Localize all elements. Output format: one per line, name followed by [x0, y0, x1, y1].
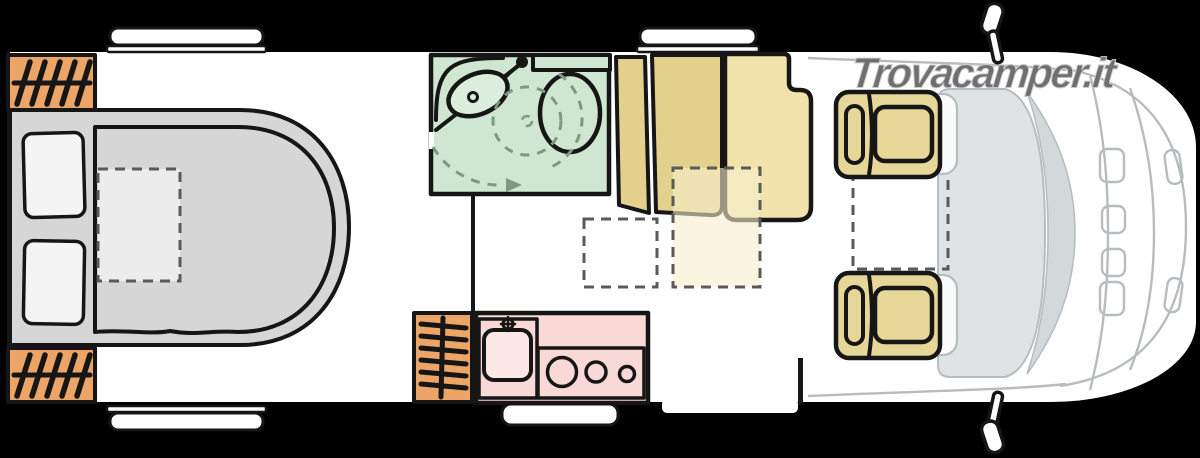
roof-vent-icon: [110, 413, 263, 430]
wall-bathroom-kitchen: [471, 196, 475, 313]
roof-vent-flange: [107, 46, 266, 52]
toilet-tank: [533, 55, 610, 70]
roof-vent-icon: [502, 404, 618, 425]
armrest: [846, 287, 863, 344]
wardrobe-door: [616, 57, 649, 213]
rear-heater-vent-bottom: [8, 348, 95, 402]
headlight-icon: [1164, 149, 1184, 185]
bathroom-door-gap: [429, 132, 434, 149]
swivel-area-dashed: [853, 173, 948, 269]
roof-vent-icon: [640, 28, 756, 45]
bed-pad-dashed: [98, 169, 180, 281]
camper-floorplan-image: Trovacamper.it: [0, 0, 1200, 458]
rear-heater-vent-top: [8, 55, 95, 110]
nose-outline: [1060, 68, 1186, 386]
cab-passenger-seat: [836, 92, 957, 177]
island-bed: [10, 110, 349, 345]
seat-cushion: [875, 107, 932, 161]
cab-floor-line: [808, 384, 1066, 396]
wing-mirror-icon: [979, 419, 1005, 455]
armrest: [846, 106, 863, 163]
floor-marker-dashed: [584, 219, 657, 287]
hood-line-2: [1130, 88, 1154, 370]
cab-driver-seat: [836, 273, 957, 358]
grille-slot-icon: [1102, 249, 1125, 276]
dinette-table-dashed: [673, 168, 760, 287]
faucet-icon: [516, 56, 528, 68]
kitchen: [476, 313, 648, 403]
wall-cab-partition: [798, 358, 803, 405]
seat-cushion: [875, 288, 932, 342]
roof-vent-flange: [637, 46, 759, 52]
kitchen-sink-icon: [484, 330, 531, 380]
kitchen-heater: [414, 313, 472, 402]
grille-slot-icon: [1102, 206, 1125, 233]
roof-vent-flange: [107, 406, 266, 412]
watermark-text: Trovacamper.it: [848, 49, 1116, 98]
pillow-icon: [23, 132, 85, 218]
entry-step: [662, 399, 798, 413]
bathroom: [429, 55, 610, 194]
toilet-bowl-icon: [540, 74, 600, 152]
pillow-icon: [23, 240, 84, 324]
roof-vent-icon: [110, 28, 263, 45]
